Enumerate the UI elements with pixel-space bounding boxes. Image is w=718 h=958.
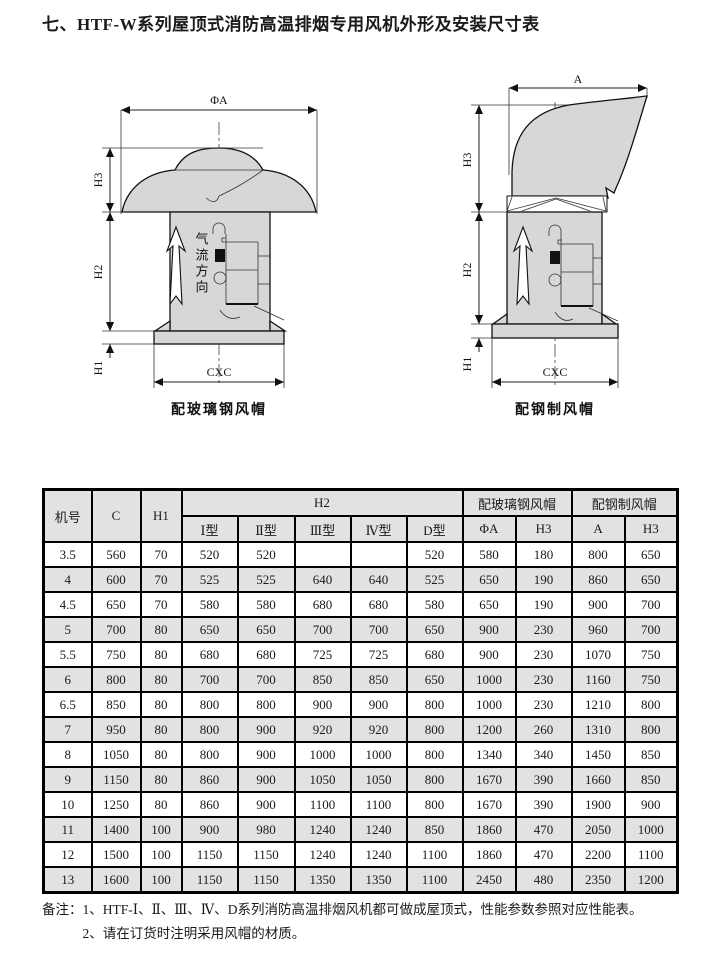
airflow-label: 气流方向 [194, 231, 209, 296]
table-cell: 80 [141, 692, 182, 717]
table-cell: 725 [351, 642, 407, 667]
notes: 备注： 1、HTF-Ⅰ、Ⅱ、Ⅲ、Ⅳ、D系列消防高温排烟风机都可做成屋顶式，性能参… [42, 898, 643, 946]
table-cell: 4 [44, 567, 92, 592]
table-cell: 850 [295, 667, 351, 692]
table-cell: 650 [407, 667, 463, 692]
table-cell: 390 [516, 792, 572, 817]
spec-table-body: 3.55607052052052058018080065046007052552… [44, 542, 678, 893]
table-cell: 700 [351, 617, 407, 642]
table-cell: 580 [182, 592, 238, 617]
table-cell: 470 [516, 817, 572, 842]
table-cell: 650 [463, 592, 516, 617]
table-cell: 80 [141, 617, 182, 642]
table-cell: 70 [141, 542, 182, 567]
table-row: 1114001009009801240124085018604702050100… [44, 817, 678, 842]
table-cell: 800 [407, 692, 463, 717]
table-row: 81050808009001000100080013403401450850 [44, 742, 678, 767]
table-cell: 1050 [92, 742, 141, 767]
table-cell: 680 [182, 642, 238, 667]
table-cell: 230 [516, 617, 572, 642]
table-cell: 1150 [238, 867, 295, 893]
table-row: 1215001001150115012401240110018604702200… [44, 842, 678, 867]
table-row: 91150808609001050105080016703901660850 [44, 767, 678, 792]
steel-cap-drawing: A H3 H2 H [415, 72, 705, 432]
table-cell: 1500 [92, 842, 141, 867]
table-cell: 1250 [92, 792, 141, 817]
table-cell: 800 [572, 542, 625, 567]
table-cell: 560 [92, 542, 141, 567]
table-cell: 900 [351, 692, 407, 717]
table-cell: 190 [516, 567, 572, 592]
table-cell: 800 [238, 692, 295, 717]
table-cell: 80 [141, 792, 182, 817]
table-cell: 860 [182, 792, 238, 817]
table-cell: 1400 [92, 817, 141, 842]
table-cell: 850 [625, 767, 678, 792]
table-cell: 7 [44, 717, 92, 742]
col-header-type-1: Ⅰ型 [182, 516, 238, 542]
hub-marker [550, 251, 560, 264]
dim-label-h1: H1 [91, 361, 105, 376]
table-cell: 700 [92, 617, 141, 642]
table-cell: 2350 [572, 867, 625, 893]
cap-shape [512, 96, 647, 198]
col-header-h3-steel: H3 [625, 516, 678, 542]
table-cell: 800 [625, 692, 678, 717]
table-cell: 340 [516, 742, 572, 767]
table-cell: 800 [182, 692, 238, 717]
table-cell: 800 [182, 742, 238, 767]
table-cell: 680 [295, 592, 351, 617]
table-cell: 80 [141, 642, 182, 667]
table-cell: 520 [182, 542, 238, 567]
table-cell: 860 [182, 767, 238, 792]
table-row: 3.556070520520520580180800650 [44, 542, 678, 567]
table-cell: 700 [238, 667, 295, 692]
table-cell: 100 [141, 842, 182, 867]
table-cell: 1660 [572, 767, 625, 792]
table-cell: 900 [625, 792, 678, 817]
table-row: 101250808609001100110080016703901900900 [44, 792, 678, 817]
dimension-table: 机号 C H1 H2 配玻璃钢风帽 配钢制风帽 Ⅰ型 Ⅱ型 Ⅲ型 Ⅳ型 D型 Φ… [42, 488, 679, 894]
fiberglass-cap-drawing: ΦA H3 气流方向 H2 H1 CXC 配玻璃钢 [58, 72, 380, 432]
table-cell: 650 [182, 617, 238, 642]
table-cell: 1070 [572, 642, 625, 667]
table-cell: 230 [516, 692, 572, 717]
table-row: 1316001001150115013501350110024504802350… [44, 867, 678, 893]
fiberglass-drawing-caption: 配玻璃钢风帽 [171, 401, 267, 418]
table-cell: 900 [295, 692, 351, 717]
table-cell: 900 [463, 642, 516, 667]
table-cell: 520 [407, 542, 463, 567]
table-cell: 100 [141, 817, 182, 842]
dim-label-h2: H2 [460, 263, 474, 278]
table-cell: 525 [182, 567, 238, 592]
table-cell: 650 [238, 617, 295, 642]
table-cell: 900 [238, 767, 295, 792]
table-cell: 1450 [572, 742, 625, 767]
document-page: { "title": "七、HTF-W系列屋顶式消防高温排烟专用风机外形及安装尺… [0, 0, 718, 958]
table-cell: 900 [463, 617, 516, 642]
col-group-fiberglass-cap: 配玻璃钢风帽 [463, 490, 572, 517]
table-cell: 860 [572, 567, 625, 592]
table-cell: 1150 [238, 842, 295, 867]
table-cell: 800 [625, 717, 678, 742]
base-gusset [270, 321, 285, 331]
col-header-a: A [572, 516, 625, 542]
table-cell: 1670 [463, 792, 516, 817]
table-cell: 1000 [463, 692, 516, 717]
table-cell: 80 [141, 767, 182, 792]
table-cell: 80 [141, 667, 182, 692]
table-row: 460070525525640640525650190860650 [44, 567, 678, 592]
table-cell: 700 [182, 667, 238, 692]
table-cell: 900 [572, 592, 625, 617]
table-cell: 480 [516, 867, 572, 893]
table-cell: 6 [44, 667, 92, 692]
table-cell: 1150 [182, 867, 238, 893]
table-cell: 800 [407, 767, 463, 792]
hub-marker [215, 249, 225, 262]
table-cell: 800 [407, 792, 463, 817]
table-cell: 2200 [572, 842, 625, 867]
table-cell: 680 [351, 592, 407, 617]
table-cell: 1350 [295, 867, 351, 893]
col-header-type-d: D型 [407, 516, 463, 542]
page-title: 七、HTF-W系列屋顶式消防高温排烟专用风机外形及安装尺寸表 [42, 10, 540, 35]
table-cell: 1100 [407, 842, 463, 867]
table-cell: 100 [141, 867, 182, 893]
col-header-h3-fiberglass: H3 [516, 516, 572, 542]
table-cell: 1000 [625, 817, 678, 842]
table-cell: 750 [625, 667, 678, 692]
note-item: 2、请在订货时注明采用风帽的材质。 [83, 922, 643, 946]
table-cell: 5.5 [44, 642, 92, 667]
table-cell: 1240 [351, 817, 407, 842]
table-cell: 1860 [463, 842, 516, 867]
dim-label-cxc: CXC [207, 365, 232, 379]
table-cell: 8 [44, 742, 92, 767]
table-cell: 650 [407, 617, 463, 642]
col-header-type-2: Ⅱ型 [238, 516, 295, 542]
table-cell: 6.5 [44, 692, 92, 717]
table-cell: 650 [625, 542, 678, 567]
table-cell: 470 [516, 842, 572, 867]
table-cell: 900 [182, 817, 238, 842]
col-header-type-4: Ⅳ型 [351, 516, 407, 542]
table-cell: 3.5 [44, 542, 92, 567]
table-cell: 1240 [351, 842, 407, 867]
table-cell: 520 [238, 542, 295, 567]
notes-label: 备注： [42, 898, 83, 946]
table-cell: 1050 [351, 767, 407, 792]
col-header-h1: H1 [141, 490, 182, 543]
table-cell: 1200 [625, 867, 678, 893]
table-cell: 640 [351, 567, 407, 592]
base-gusset [155, 321, 170, 331]
table-cell: 390 [516, 767, 572, 792]
dim-label-h1: H1 [460, 357, 474, 372]
table-cell: 1050 [295, 767, 351, 792]
table-cell: 1160 [572, 667, 625, 692]
table-cell: 800 [182, 717, 238, 742]
table-cell: 580 [238, 592, 295, 617]
table-cell: 700 [295, 617, 351, 642]
table-cell: 800 [92, 667, 141, 692]
table-cell: 1000 [351, 742, 407, 767]
table-cell: 230 [516, 642, 572, 667]
table-cell: 640 [295, 567, 351, 592]
fan-body [170, 212, 270, 331]
table-row: 4.565070580580680680580650190900700 [44, 592, 678, 617]
dim-label-a: A [574, 72, 583, 86]
table-cell: 900 [238, 742, 295, 767]
base-flange [154, 331, 284, 344]
table-cell: 800 [407, 717, 463, 742]
table-cell: 1000 [463, 667, 516, 692]
table-cell: 920 [295, 717, 351, 742]
col-header-phi-a: ΦA [463, 516, 516, 542]
table-cell: 5 [44, 617, 92, 642]
table-cell: 12 [44, 842, 92, 867]
col-header-model: 机号 [44, 490, 92, 543]
table-cell: 1210 [572, 692, 625, 717]
truss-band [507, 196, 607, 212]
table-cell: 70 [141, 592, 182, 617]
table-cell: 700 [625, 592, 678, 617]
table-cell: 850 [625, 742, 678, 767]
table-cell: 900 [238, 717, 295, 742]
table-cell: 750 [625, 642, 678, 667]
table-row: 5.5750806806807257256809002301070750 [44, 642, 678, 667]
table-cell: 680 [238, 642, 295, 667]
table-cell: 800 [407, 742, 463, 767]
table-cell: 580 [407, 592, 463, 617]
table-cell: 650 [625, 567, 678, 592]
table-row: 79508080090092092080012002601310800 [44, 717, 678, 742]
table-cell: 960 [572, 617, 625, 642]
table-cell: 1900 [572, 792, 625, 817]
dim-label-h3: H3 [91, 173, 105, 188]
col-group-h2: H2 [182, 490, 463, 517]
table-cell: 850 [92, 692, 141, 717]
table-cell: 80 [141, 717, 182, 742]
table-cell: 750 [92, 642, 141, 667]
table-cell: 980 [238, 817, 295, 842]
table-cell: 1240 [295, 817, 351, 842]
table-cell: 700 [625, 617, 678, 642]
table-cell: 13 [44, 867, 92, 893]
table-cell: 9 [44, 767, 92, 792]
dim-label-cxc: CXC [543, 365, 568, 379]
table-cell: 1100 [625, 842, 678, 867]
table-cell: 900 [238, 792, 295, 817]
base-gusset [493, 314, 507, 324]
table-cell: 80 [141, 742, 182, 767]
table-cell: 1100 [407, 867, 463, 893]
table-cell: 525 [407, 567, 463, 592]
col-group-steel-cap: 配钢制风帽 [572, 490, 678, 517]
table-cell: 1150 [92, 767, 141, 792]
table-cell: 1350 [351, 867, 407, 893]
table-cell: 10 [44, 792, 92, 817]
dim-label-h2: H2 [91, 265, 105, 280]
table-cell: 600 [92, 567, 141, 592]
col-header-c: C [92, 490, 141, 543]
table-cell: 1100 [295, 792, 351, 817]
table-row: 6.58508080080090090080010002301210800 [44, 692, 678, 717]
table-cell: 230 [516, 667, 572, 692]
table-cell: 850 [351, 667, 407, 692]
table-cell: 1240 [295, 842, 351, 867]
table-cell: 180 [516, 542, 572, 567]
table-cell: 1340 [463, 742, 516, 767]
cap-shape [122, 148, 316, 212]
table-cell: 1000 [295, 742, 351, 767]
table-cell: 2450 [463, 867, 516, 893]
table-cell: 4.5 [44, 592, 92, 617]
table-cell: 680 [407, 642, 463, 667]
note-item: 1、HTF-Ⅰ、Ⅱ、Ⅲ、Ⅳ、D系列消防高温排烟风机都可做成屋顶式，性能参数参照对… [83, 898, 643, 922]
table-cell: 950 [92, 717, 141, 742]
table-cell [295, 542, 351, 567]
table-cell: 725 [295, 642, 351, 667]
table-cell: 2050 [572, 817, 625, 842]
table-row: 68008070070085085065010002301160750 [44, 667, 678, 692]
col-header-type-3: Ⅲ型 [295, 516, 351, 542]
dim-label-h3: H3 [460, 153, 474, 168]
table-cell: 650 [92, 592, 141, 617]
table-cell: 525 [238, 567, 295, 592]
table-cell: 1860 [463, 817, 516, 842]
table-cell: 260 [516, 717, 572, 742]
table-cell: 1100 [351, 792, 407, 817]
table-cell: 1150 [182, 842, 238, 867]
table-cell: 1670 [463, 767, 516, 792]
dim-label-phi-a: ΦA [210, 93, 228, 107]
table-row: 570080650650700700650900230960700 [44, 617, 678, 642]
table-cell: 580 [463, 542, 516, 567]
table-cell: 920 [351, 717, 407, 742]
notes-list: 1、HTF-Ⅰ、Ⅱ、Ⅲ、Ⅳ、D系列消防高温排烟风机都可做成屋顶式，性能参数参照对… [83, 898, 643, 946]
table-cell [351, 542, 407, 567]
table-cell: 850 [407, 817, 463, 842]
table-cell: 190 [516, 592, 572, 617]
table-cell: 70 [141, 567, 182, 592]
table-cell: 1310 [572, 717, 625, 742]
steel-drawing-caption: 配钢制风帽 [515, 401, 595, 418]
table-cell: 1200 [463, 717, 516, 742]
table-cell: 650 [463, 567, 516, 592]
table-cell: 11 [44, 817, 92, 842]
base-flange [492, 324, 618, 338]
table-cell: 1600 [92, 867, 141, 893]
